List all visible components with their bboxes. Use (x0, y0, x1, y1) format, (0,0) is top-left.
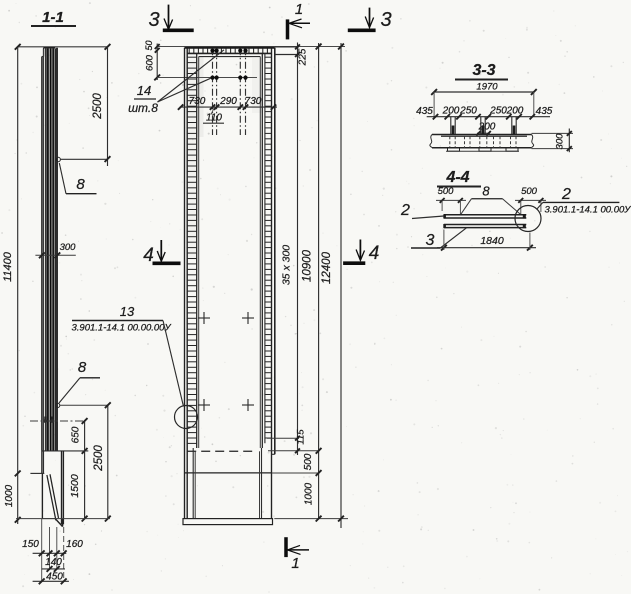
svg-text:14: 14 (137, 83, 151, 98)
svg-text:300: 300 (60, 242, 77, 253)
svg-text:300: 300 (555, 133, 566, 150)
svg-text:8: 8 (482, 184, 490, 199)
svg-text:250: 250 (489, 106, 507, 117)
svg-text:1: 1 (291, 555, 299, 572)
svg-text:650: 650 (71, 426, 82, 443)
svg-text:3.901.1-14.1 00.00У: 3.901.1-14.1 00.00У (545, 205, 631, 216)
svg-text:3: 3 (380, 9, 391, 31)
svg-text:3-3: 3-3 (472, 62, 495, 79)
svg-text:225: 225 (298, 48, 309, 66)
svg-text:шт.8: шт.8 (128, 101, 158, 115)
svg-text:435: 435 (416, 106, 433, 117)
svg-text:2500: 2500 (93, 445, 105, 472)
svg-text:2500: 2500 (92, 93, 104, 120)
svg-text:200: 200 (442, 106, 460, 117)
svg-text:730: 730 (245, 96, 262, 107)
svg-text:4: 4 (369, 243, 380, 264)
svg-text:1000: 1000 (4, 484, 15, 507)
svg-text:2: 2 (400, 202, 410, 219)
svg-text:12400: 12400 (321, 251, 333, 284)
svg-text:600: 600 (145, 54, 156, 71)
svg-text:115: 115 (296, 429, 307, 445)
svg-text:8: 8 (76, 176, 85, 193)
svg-text:250: 250 (459, 106, 477, 117)
svg-text:4-4: 4-4 (445, 169, 469, 186)
svg-text:3.901.1-14.1 00.00.00У: 3.901.1-14.1 00.00.00У (72, 323, 172, 334)
svg-text:50: 50 (144, 40, 154, 50)
svg-text:1000: 1000 (304, 482, 315, 505)
svg-text:160: 160 (66, 539, 83, 550)
svg-text:1500: 1500 (69, 474, 81, 498)
svg-text:3: 3 (148, 9, 159, 31)
svg-text:35 x 300: 35 x 300 (281, 245, 293, 285)
svg-text:500: 500 (303, 453, 314, 470)
svg-text:1970: 1970 (476, 82, 498, 93)
svg-text:2: 2 (561, 186, 571, 203)
svg-text:290: 290 (219, 96, 237, 107)
svg-text:1-1: 1-1 (42, 9, 64, 26)
svg-text:10900: 10900 (302, 249, 314, 282)
svg-text:110: 110 (206, 113, 222, 124)
svg-text:500: 500 (438, 186, 455, 197)
svg-text:150: 150 (22, 539, 39, 550)
svg-text:8: 8 (78, 359, 87, 376)
svg-text:200: 200 (506, 106, 524, 117)
svg-text:730: 730 (189, 96, 206, 107)
svg-text:11400: 11400 (2, 251, 14, 282)
svg-text:1840: 1840 (480, 235, 504, 247)
svg-text:1: 1 (295, 1, 303, 18)
svg-text:4: 4 (143, 245, 154, 266)
svg-text:13: 13 (120, 304, 135, 319)
svg-text:3: 3 (426, 232, 435, 249)
svg-text:500: 500 (521, 186, 538, 197)
svg-text:435: 435 (536, 106, 553, 117)
